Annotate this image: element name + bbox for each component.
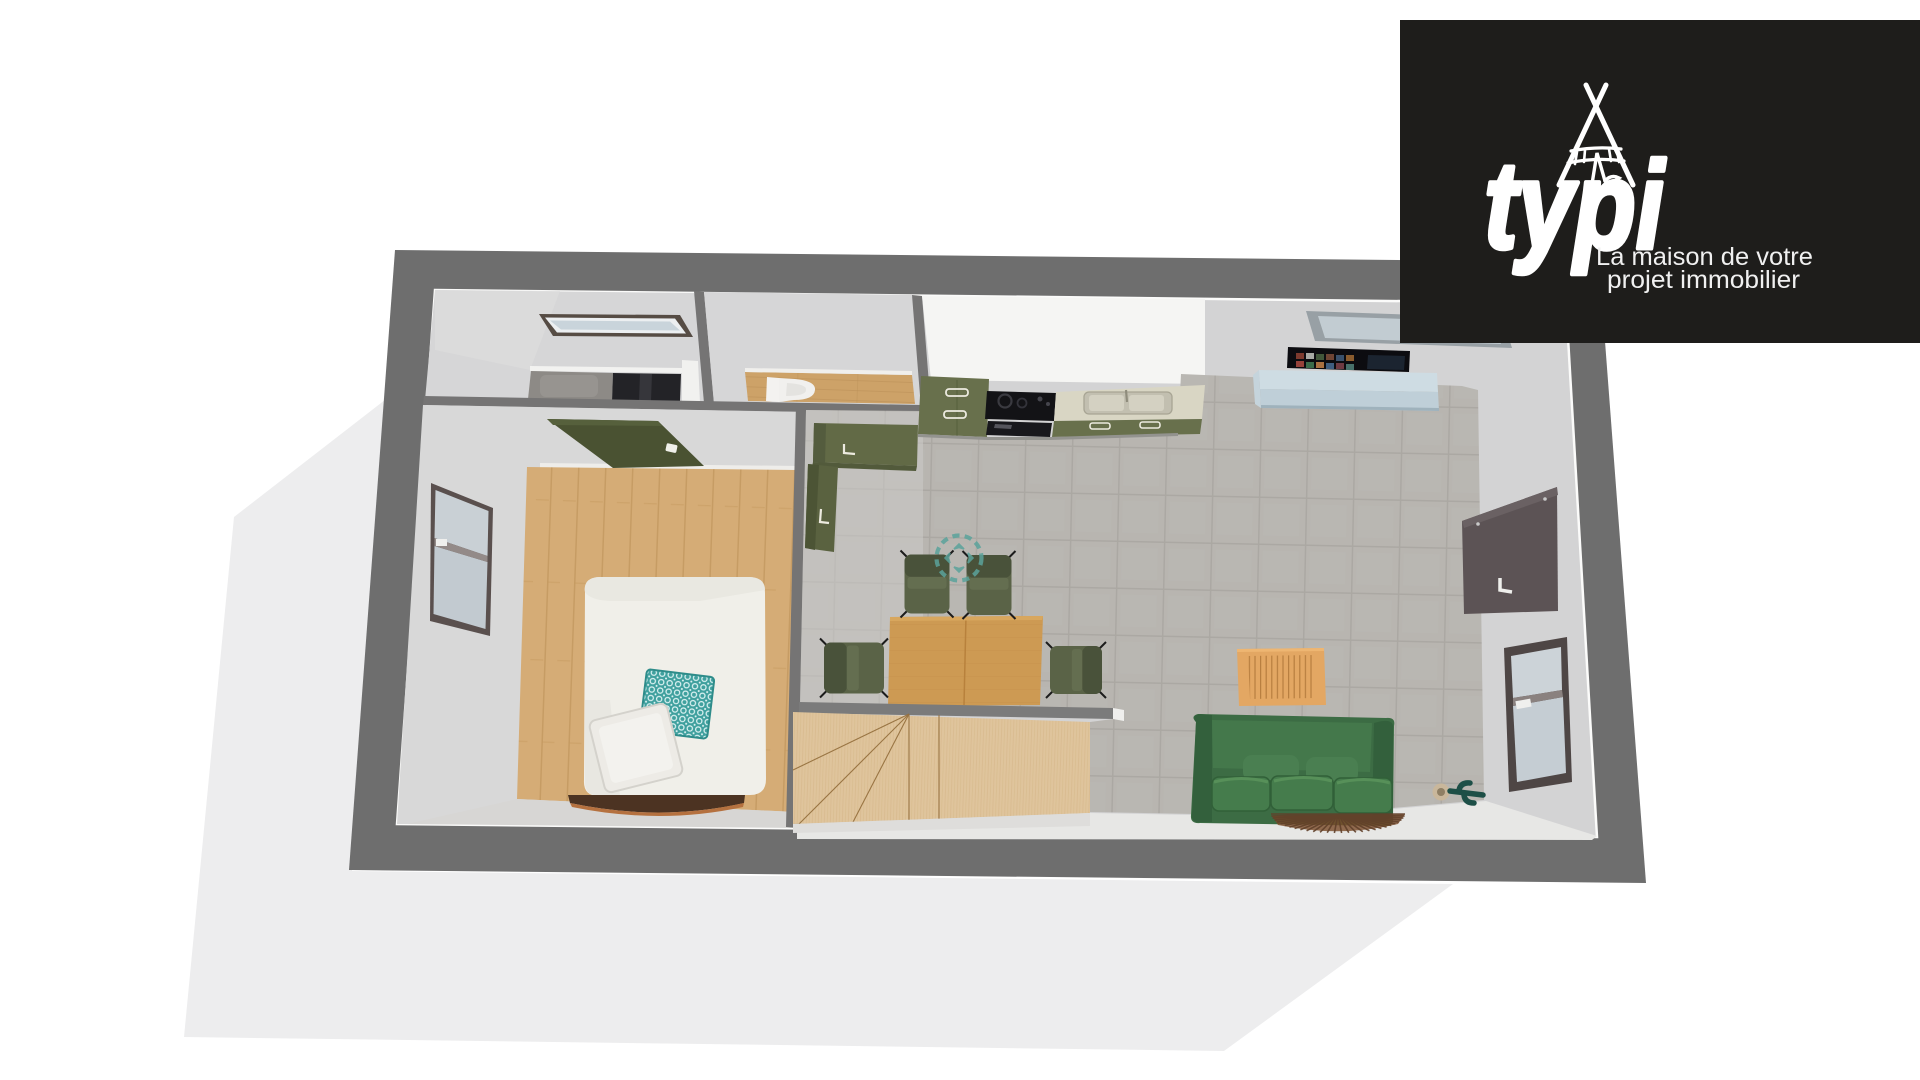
svg-text:projet immobilier: projet immobilier: [1607, 266, 1800, 294]
